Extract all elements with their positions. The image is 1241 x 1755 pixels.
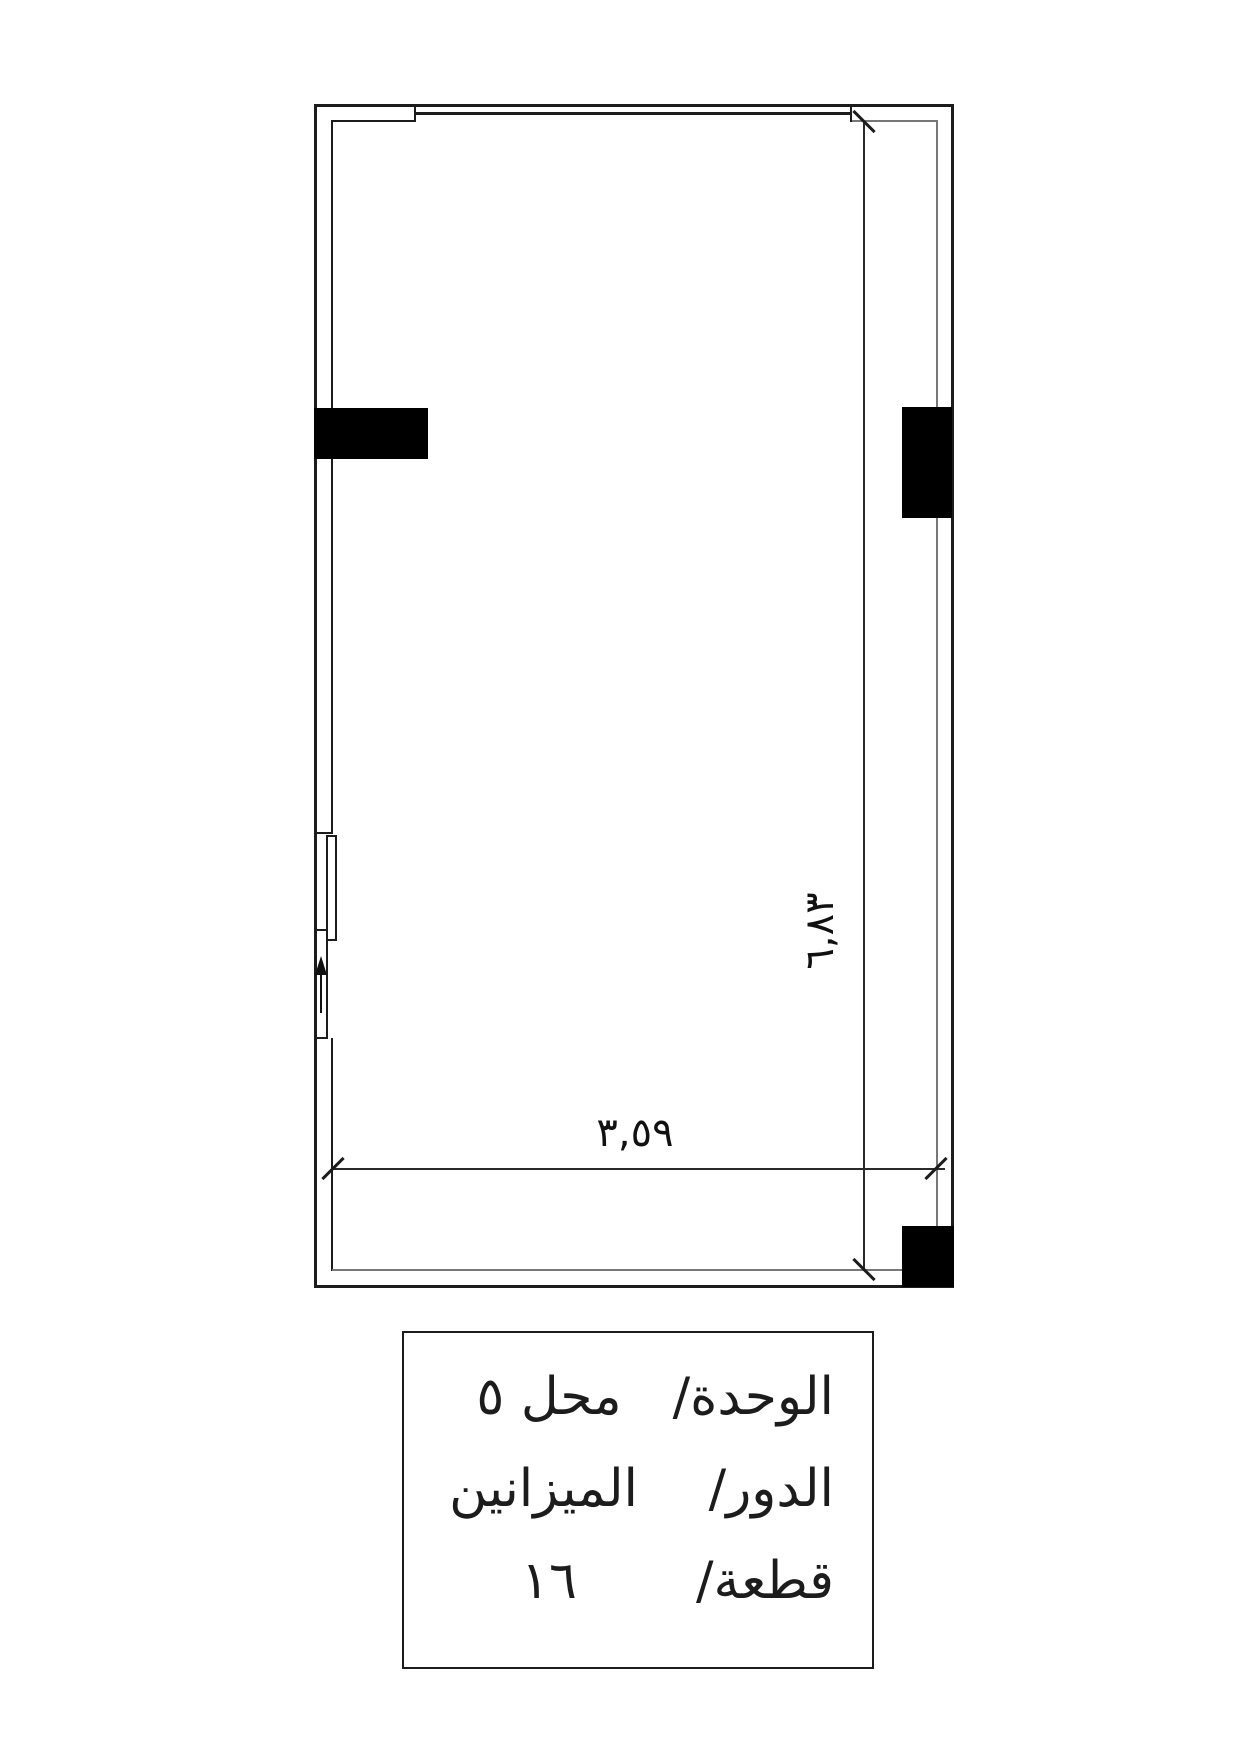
column-left [314,408,428,459]
wall-bottom-outer [314,1285,954,1288]
wall-right-outer [951,104,954,1288]
door-leaf [326,835,337,941]
storefront-cap-left [414,104,416,122]
width-dimension-label: ٣,٥٩ [560,1110,710,1156]
column-right [902,407,952,518]
storefront-band-line [415,112,852,115]
wall-top-inner-left [331,120,416,122]
floor-value: الميزانين [460,1459,638,1519]
entry-arrow-shaft [320,973,322,1013]
unit-label: الوحدة/ [673,1367,834,1427]
title-block-row-plot: قطعة/ ١٦ [404,1535,872,1627]
height-dimension-label: ٦,٨٣ [797,892,843,969]
door-jamb-top [314,832,333,834]
column-bottom-right [902,1226,954,1287]
wall-bottom-inner [332,1269,904,1271]
width-dimension-line [332,1168,945,1170]
wall-top-outer [314,104,954,107]
wall-left-inner-upper [331,120,333,833]
wall-left-outer [314,104,317,1288]
door-step-line [317,929,327,931]
plot-label: قطعة/ [696,1551,834,1611]
floor-plan-canvas: ٣,٥٩ ٦,٨٣ الوحدة/ محل ٥ الدور/ الميزانين… [0,0,1241,1755]
title-block: الوحدة/ محل ٥ الدور/ الميزانين قطعة/ ١٦ [402,1331,874,1669]
door-jamb-bottom [314,1037,328,1039]
wall-left-inner-lower [331,1038,333,1271]
unit-value: محل ٥ [460,1367,638,1427]
title-block-row-unit: الوحدة/ محل ٥ [404,1351,872,1443]
floor-label: الدور/ [709,1459,834,1519]
storefront-cap-right [850,104,852,122]
title-block-row-floor: الدور/ الميزانين [404,1443,872,1535]
wall-right-inner [936,120,938,1271]
door-channel-line [326,940,328,1038]
height-dimension-line [863,121,865,1271]
plot-value: ١٦ [460,1551,638,1611]
